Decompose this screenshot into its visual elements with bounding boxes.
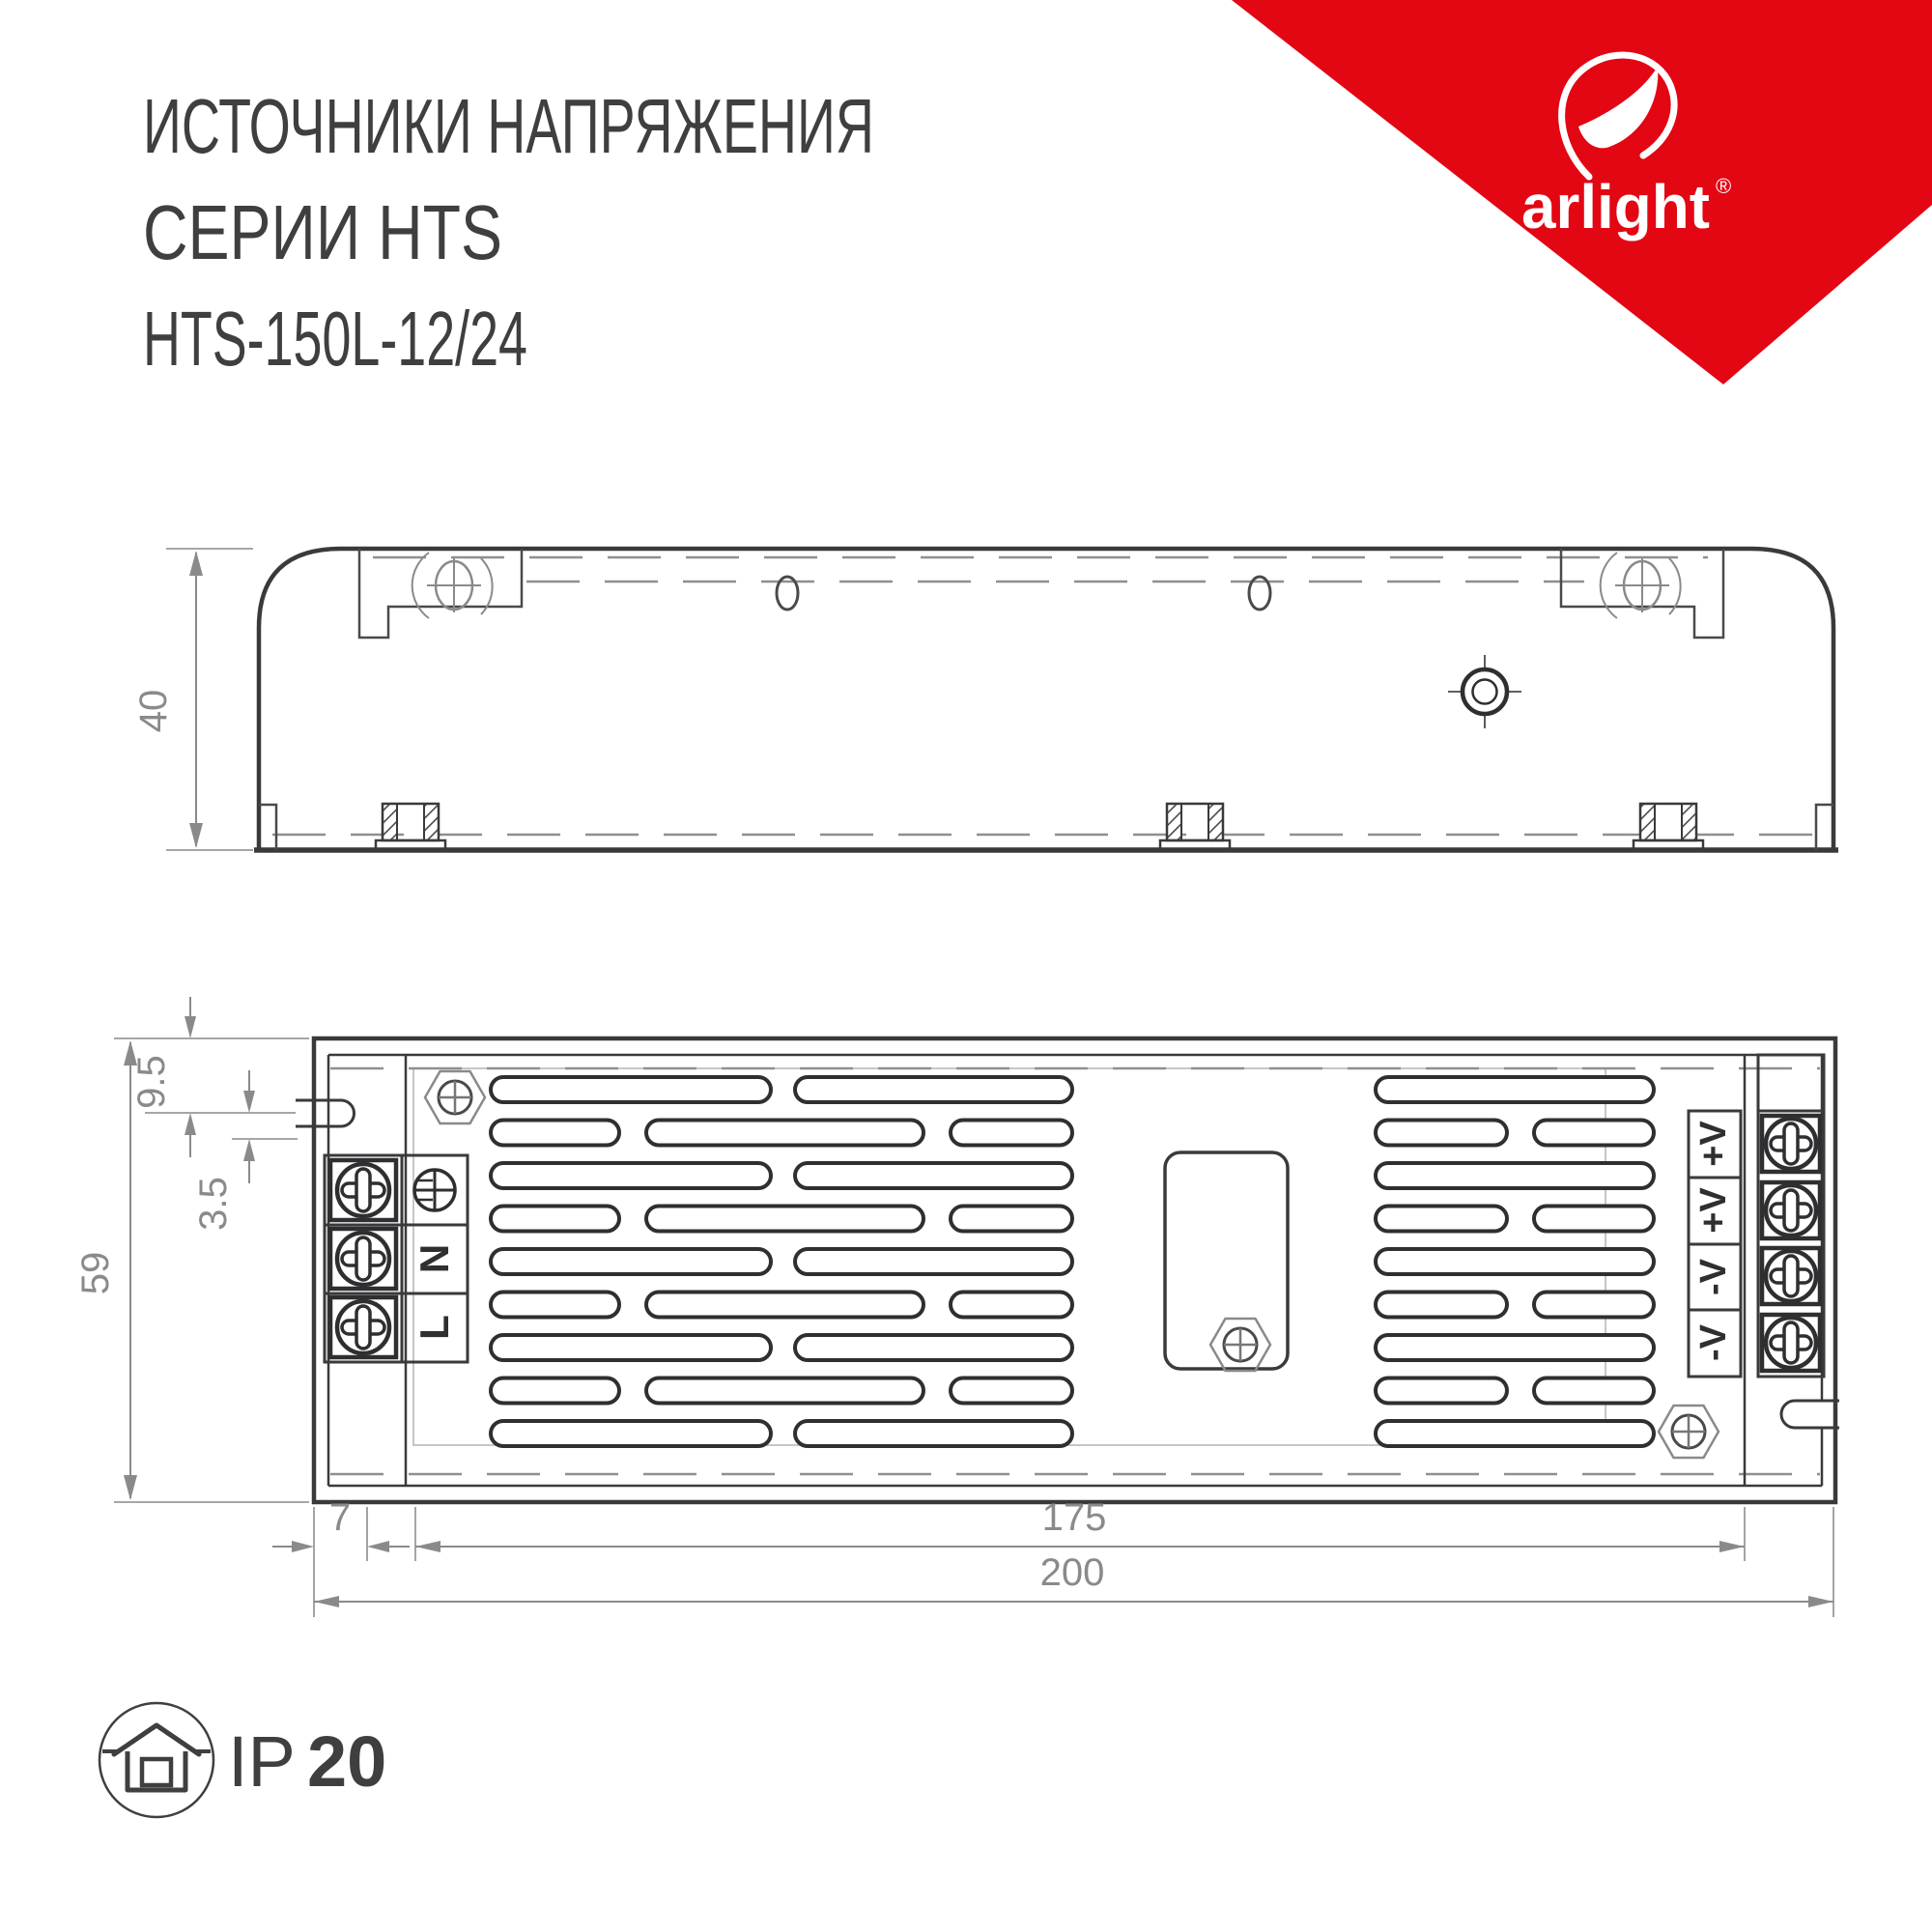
vent-slot [1534, 1293, 1654, 1318]
vent-slot [646, 1121, 923, 1146]
vent-slot [795, 1249, 1072, 1274]
title-line-1: ИСТОЧНИКИ НАПРЯЖЕНИЯ [143, 83, 874, 169]
dim-value-59: 59 [74, 1252, 117, 1295]
vent-slot [646, 1207, 923, 1232]
ip20-rating: IP 20 [99, 1703, 386, 1817]
vent-slot [951, 1293, 1072, 1318]
vent-slot [491, 1335, 771, 1360]
title-line-2: СЕРИИ HTS [143, 189, 502, 275]
page-title: ИСТОЧНИКИ НАПРЯЖЕНИЯ СЕРИИ HTS HTS-150L-… [143, 83, 874, 382]
terminal-label-minus-v-2: -V [1693, 1323, 1734, 1361]
vent-slot [1376, 1293, 1507, 1318]
top-view-drawing: N L [74, 997, 1839, 1617]
ip-prefix: IP [228, 1721, 296, 1802]
terminal-screw-icon [330, 1160, 396, 1220]
dim-value-200: 200 [1040, 1551, 1105, 1594]
ip-value: 20 [307, 1721, 386, 1802]
input-terminal-block: N L [325, 1155, 468, 1362]
vent-slot [951, 1378, 1072, 1404]
vent-grid [491, 1077, 1654, 1446]
vent-slot [1376, 1207, 1507, 1232]
vent-slot [1376, 1378, 1507, 1404]
dimension-3-5: 3.5 [192, 1070, 298, 1231]
terminal-label-minus-v-1: -V [1693, 1258, 1734, 1295]
terminal-screw-icon [330, 1229, 396, 1289]
vent-slot [795, 1421, 1072, 1446]
dim-value-3-5: 3.5 [192, 1177, 235, 1231]
vent-slot [491, 1421, 771, 1446]
dim-value-7: 7 [329, 1496, 351, 1539]
terminal-screw-icon [330, 1297, 396, 1357]
side-view-body [259, 549, 1833, 850]
dim-value-40: 40 [132, 690, 175, 733]
terminal-screw-icon [1762, 1116, 1820, 1172]
vent-slot [1534, 1378, 1654, 1404]
dim-value-9-5: 9.5 [130, 1055, 173, 1109]
dimension-9-5: 9.5 [130, 997, 296, 1157]
dimension-59: 59 [74, 1038, 309, 1502]
vent-slot [1376, 1249, 1654, 1274]
vent-slot [1376, 1077, 1654, 1102]
terminal-label-n: N [412, 1244, 457, 1273]
vent-slot [491, 1293, 619, 1318]
vent-slot [951, 1121, 1072, 1146]
vent-slot [491, 1121, 619, 1146]
vent-slot [795, 1163, 1072, 1188]
brand-corner: arlight ® [1232, 0, 1932, 384]
vent-slot [491, 1378, 619, 1404]
vent-slot [491, 1163, 771, 1188]
vent-slot [491, 1207, 619, 1232]
vent-slot [1534, 1121, 1654, 1146]
vent-slot [491, 1077, 771, 1102]
vent-slot [1534, 1207, 1654, 1232]
vent-slot [795, 1077, 1072, 1102]
vent-slot [491, 1249, 771, 1274]
vent-slot [795, 1335, 1072, 1360]
terminal-label-l: L [412, 1315, 457, 1340]
terminal-screw-icon [1762, 1182, 1820, 1238]
vent-slot [1376, 1421, 1654, 1446]
title-line-3: HTS-150L-12/24 [143, 296, 527, 382]
vent-slot [951, 1207, 1072, 1232]
terminal-label-plus-v-2: +V [1693, 1187, 1734, 1234]
technical-drawing-canvas: arlight ® ИСТОЧНИКИ НАПРЯЖЕНИЯ СЕРИИ HTS… [0, 0, 1932, 1932]
registered-mark: ® [1716, 174, 1731, 198]
vent-slot [1376, 1163, 1654, 1188]
house-icon [102, 1725, 211, 1790]
vent-slot [1376, 1335, 1654, 1360]
terminal-screw-icon [1762, 1248, 1820, 1304]
datasheet-page: arlight ® ИСТОЧНИКИ НАПРЯЖЕНИЯ СЕРИИ HTS… [0, 0, 1932, 1932]
ground-icon [414, 1170, 455, 1210]
terminal-label-plus-v-1: +V [1693, 1121, 1734, 1167]
vent-slot [646, 1378, 923, 1404]
dimension-7: 7 [272, 1496, 410, 1617]
brand-wordmark: arlight [1521, 172, 1710, 241]
terminal-screw-icon [1762, 1315, 1820, 1371]
vent-slot [1376, 1121, 1507, 1146]
dim-value-175: 175 [1042, 1496, 1107, 1539]
dimension-40: 40 [132, 549, 253, 850]
side-view-drawing: 40 [132, 549, 1838, 850]
vent-slot [646, 1293, 923, 1318]
